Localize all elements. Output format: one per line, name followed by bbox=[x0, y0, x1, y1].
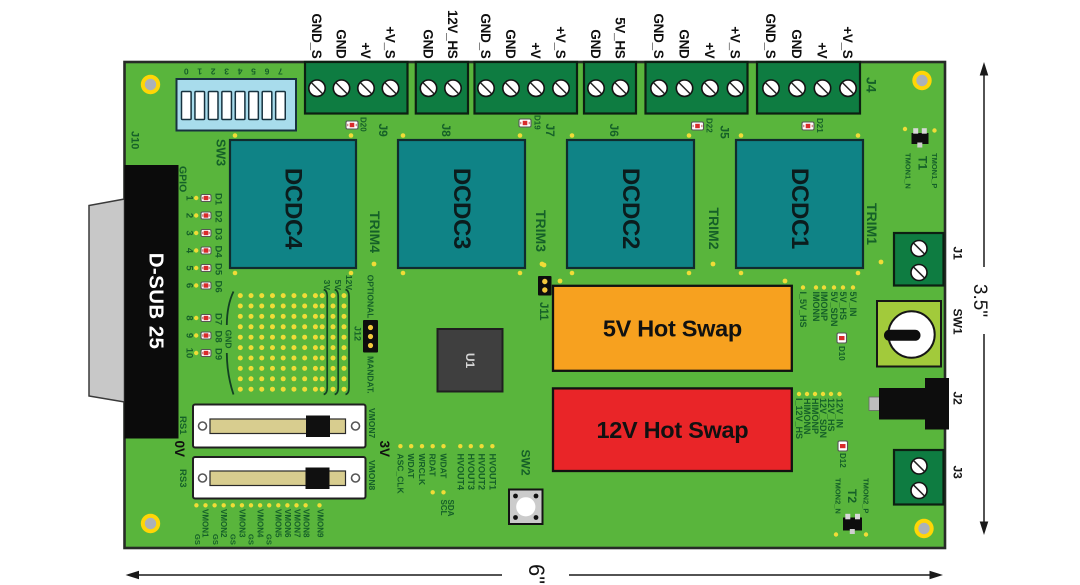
svg-text:+V_S: +V_S bbox=[383, 26, 398, 58]
svg-text:GND_S: GND_S bbox=[478, 13, 493, 58]
svg-text:4: 4 bbox=[184, 248, 195, 254]
svg-text:3V: 3V bbox=[377, 441, 392, 458]
svg-text:+V_S: +V_S bbox=[728, 26, 743, 58]
svg-text:J2: J2 bbox=[951, 392, 965, 406]
svg-text:MANDAT.: MANDAT. bbox=[366, 356, 376, 394]
svg-text:U1: U1 bbox=[463, 353, 477, 369]
svg-text:GND: GND bbox=[588, 29, 603, 59]
svg-text:D10: D10 bbox=[837, 346, 846, 361]
svg-text:RS3: RS3 bbox=[177, 469, 188, 487]
svg-text:GS: GS bbox=[265, 534, 274, 545]
svg-text:D21: D21 bbox=[815, 118, 824, 133]
svg-text:5: 5 bbox=[184, 265, 195, 271]
svg-text:TRIM3: TRIM3 bbox=[533, 210, 549, 252]
svg-text:0: 0 bbox=[184, 67, 189, 77]
svg-text:GND: GND bbox=[503, 29, 518, 59]
svg-text:VMON7: VMON7 bbox=[367, 408, 377, 439]
svg-text:J8: J8 bbox=[439, 124, 453, 138]
svg-text:ASC_CLK: ASC_CLK bbox=[395, 454, 405, 495]
svg-text:6: 6 bbox=[264, 67, 269, 77]
svg-text:VMON6: VMON6 bbox=[283, 509, 292, 538]
svg-text:GND_S: GND_S bbox=[651, 13, 666, 58]
svg-text:T1: T1 bbox=[916, 156, 930, 170]
svg-text:I_5V_HS: I_5V_HS bbox=[798, 292, 808, 328]
svg-text:HVOUT1: HVOUT1 bbox=[487, 454, 497, 491]
svg-text:3: 3 bbox=[184, 230, 195, 235]
svg-text:9: 9 bbox=[184, 333, 195, 338]
svg-text:D7: D7 bbox=[213, 313, 224, 325]
svg-text:GND: GND bbox=[789, 29, 804, 59]
svg-text:GND: GND bbox=[421, 29, 436, 59]
svg-text:GS: GS bbox=[229, 534, 238, 545]
svg-text:VMON2: VMON2 bbox=[219, 509, 228, 538]
svg-text:5: 5 bbox=[251, 67, 256, 77]
svg-text:VMON3: VMON3 bbox=[238, 509, 247, 538]
svg-text:10: 10 bbox=[184, 348, 195, 359]
svg-text:DCDC2: DCDC2 bbox=[617, 168, 644, 249]
svg-text:+V: +V bbox=[358, 42, 373, 59]
svg-text:5V: 5V bbox=[333, 280, 343, 291]
svg-text:3.5": 3.5" bbox=[969, 284, 990, 317]
svg-text:12V_IN: 12V_IN bbox=[835, 398, 845, 428]
svg-text:VMON5: VMON5 bbox=[274, 509, 283, 538]
svg-text:TMON2_N: TMON2_N bbox=[834, 478, 843, 514]
svg-text:7: 7 bbox=[278, 67, 283, 77]
svg-text:TRIM4: TRIM4 bbox=[367, 211, 383, 253]
svg-text:D20: D20 bbox=[359, 117, 368, 132]
svg-text:J3: J3 bbox=[951, 466, 965, 480]
svg-text:D-SUB 25: D-SUB 25 bbox=[145, 253, 168, 350]
svg-text:J12: J12 bbox=[353, 326, 363, 341]
svg-text:DCDC1: DCDC1 bbox=[786, 168, 813, 249]
svg-text:DCDC4: DCDC4 bbox=[280, 168, 307, 250]
svg-text:HVOUT3: HVOUT3 bbox=[466, 454, 476, 491]
svg-text:D2: D2 bbox=[213, 211, 224, 223]
svg-text:VMON9: VMON9 bbox=[316, 509, 325, 538]
svg-text:6": 6" bbox=[524, 564, 549, 584]
svg-text:RDAT: RDAT bbox=[428, 454, 438, 478]
svg-text:+V: +V bbox=[702, 42, 717, 59]
svg-text:D8: D8 bbox=[213, 331, 224, 343]
svg-text:SW3: SW3 bbox=[214, 139, 228, 166]
svg-text:1: 1 bbox=[197, 67, 202, 77]
svg-text:8: 8 bbox=[184, 315, 195, 320]
svg-text:5V_SDN: 5V_SDN bbox=[829, 292, 839, 327]
svg-text:J1: J1 bbox=[951, 247, 965, 261]
svg-text:GND: GND bbox=[677, 29, 692, 59]
svg-text:J7: J7 bbox=[543, 124, 557, 138]
svg-text:2: 2 bbox=[211, 67, 216, 77]
svg-text:5V_IN: 5V_IN bbox=[848, 292, 858, 317]
svg-text:+V_S: +V_S bbox=[553, 26, 568, 58]
svg-text:T2: T2 bbox=[845, 489, 859, 503]
svg-text:J5: J5 bbox=[718, 126, 732, 140]
svg-text:J9: J9 bbox=[376, 124, 390, 138]
svg-text:VMON7: VMON7 bbox=[293, 509, 302, 538]
svg-text:12V: 12V bbox=[344, 275, 354, 290]
svg-text:WDAT: WDAT bbox=[439, 454, 449, 480]
svg-text:RS1: RS1 bbox=[177, 416, 188, 435]
svg-text:GPIO: GPIO bbox=[177, 166, 189, 192]
svg-text:TMON1_P: TMON1_P bbox=[930, 153, 939, 188]
svg-text:OPTIONAL: OPTIONAL bbox=[366, 275, 376, 319]
svg-text:J10: J10 bbox=[129, 131, 141, 149]
svg-text:D5: D5 bbox=[213, 263, 224, 276]
svg-text:2: 2 bbox=[184, 213, 195, 218]
svg-text:VMON4: VMON4 bbox=[256, 509, 265, 538]
svg-text:GND_S: GND_S bbox=[309, 13, 324, 58]
svg-text:WRCLK: WRCLK bbox=[417, 454, 427, 486]
svg-text:IMONP: IMONP bbox=[819, 292, 829, 322]
svg-text:HVOUT4: HVOUT4 bbox=[455, 454, 465, 491]
svg-text:D4: D4 bbox=[213, 246, 224, 259]
svg-text:J4: J4 bbox=[864, 77, 880, 93]
svg-text:HVOUT2: HVOUT2 bbox=[477, 454, 487, 491]
svg-text:D12: D12 bbox=[838, 453, 847, 468]
svg-text:5V_HS: 5V_HS bbox=[838, 292, 848, 321]
svg-text:1: 1 bbox=[184, 195, 195, 201]
svg-text:+V: +V bbox=[528, 42, 543, 59]
svg-text:GND: GND bbox=[224, 330, 234, 349]
svg-text:GND_S: GND_S bbox=[763, 13, 778, 58]
svg-text:D1: D1 bbox=[213, 193, 224, 206]
svg-text:DCDC3: DCDC3 bbox=[448, 168, 475, 249]
svg-text:0V: 0V bbox=[172, 441, 187, 458]
svg-text:D6: D6 bbox=[213, 281, 224, 293]
svg-text:WDAT: WDAT bbox=[406, 454, 416, 480]
svg-text:J11: J11 bbox=[537, 302, 549, 321]
svg-text:GS: GS bbox=[211, 534, 220, 545]
svg-text:3V: 3V bbox=[322, 280, 332, 291]
svg-text:TRIM1: TRIM1 bbox=[864, 203, 880, 245]
svg-text:12V Hot Swap: 12V Hot Swap bbox=[596, 417, 748, 443]
svg-text:+V_S: +V_S bbox=[840, 26, 855, 58]
svg-text:+V: +V bbox=[815, 42, 830, 59]
svg-text:6: 6 bbox=[184, 283, 195, 288]
svg-text:D19: D19 bbox=[533, 115, 542, 130]
svg-text:4: 4 bbox=[237, 67, 242, 77]
svg-text:VMON8: VMON8 bbox=[367, 460, 377, 491]
svg-text:5V Hot Swap: 5V Hot Swap bbox=[603, 316, 742, 342]
svg-text:VMON8: VMON8 bbox=[302, 509, 311, 538]
svg-text:TRIM2: TRIM2 bbox=[706, 208, 722, 250]
svg-text:TMON2_P: TMON2_P bbox=[862, 478, 871, 513]
svg-text:VMON1: VMON1 bbox=[201, 509, 210, 538]
svg-text:5V_HS: 5V_HS bbox=[613, 17, 628, 59]
svg-text:GND: GND bbox=[334, 29, 349, 59]
svg-text:D3: D3 bbox=[213, 228, 224, 240]
svg-text:GS: GS bbox=[247, 534, 256, 545]
svg-text:D22: D22 bbox=[705, 118, 714, 133]
svg-text:SDA: SDA bbox=[446, 500, 455, 517]
svg-text:D9: D9 bbox=[213, 348, 224, 360]
svg-text:TMON1_N: TMON1_N bbox=[904, 153, 913, 189]
svg-text:12V_HS: 12V_HS bbox=[445, 10, 460, 59]
svg-text:SW1: SW1 bbox=[951, 309, 965, 335]
svg-text:3: 3 bbox=[224, 67, 229, 77]
svg-text:12V_HS: 12V_HS bbox=[826, 398, 836, 432]
svg-text:J6: J6 bbox=[607, 124, 621, 138]
svg-text:SW2: SW2 bbox=[519, 450, 533, 476]
